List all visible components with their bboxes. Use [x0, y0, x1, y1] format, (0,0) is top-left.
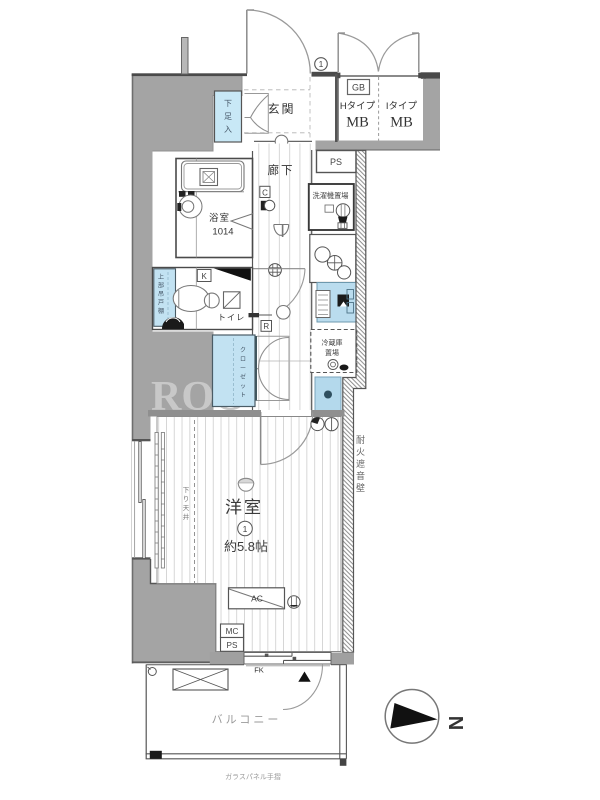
- svg-text:ク: ク: [240, 347, 246, 354]
- svg-text:下: 下: [183, 486, 190, 494]
- svg-text:冷蔵庫: 冷蔵庫: [322, 338, 343, 347]
- svg-text:天: 天: [183, 504, 190, 512]
- svg-text:K: K: [202, 272, 208, 281]
- svg-text:トイレ: トイレ: [218, 313, 246, 322]
- svg-text:1: 1: [319, 59, 324, 69]
- svg-text:音: 音: [356, 470, 365, 481]
- svg-text:Iタイプ: Iタイプ: [386, 101, 418, 112]
- svg-text:り: り: [183, 495, 190, 503]
- svg-text:足: 足: [224, 112, 232, 121]
- svg-text:置場: 置場: [325, 348, 339, 357]
- svg-text:R: R: [263, 322, 269, 331]
- svg-text:ガラスパネル手摺: ガラスパネル手摺: [225, 772, 281, 781]
- svg-text:ー: ー: [240, 366, 246, 372]
- svg-text:上: 上: [158, 273, 164, 281]
- svg-text:火: 火: [356, 447, 365, 457]
- svg-text:洗濯機置場: 洗濯機置場: [313, 191, 349, 200]
- svg-text:部: 部: [158, 282, 164, 290]
- svg-text:ゼ: ゼ: [240, 373, 246, 381]
- svg-text:耐: 耐: [356, 434, 365, 445]
- svg-text:1: 1: [243, 524, 248, 534]
- svg-text:玄関: 玄関: [267, 101, 295, 116]
- svg-text:入: 入: [224, 125, 232, 134]
- svg-text:N: N: [444, 716, 466, 730]
- svg-text:浴室: 浴室: [209, 212, 230, 224]
- svg-text:PS: PS: [227, 641, 238, 650]
- svg-text:MB: MB: [346, 115, 369, 131]
- svg-text:廊下: 廊下: [268, 163, 295, 177]
- svg-text:洋室: 洋室: [225, 498, 263, 517]
- svg-text:MB: MB: [390, 115, 413, 131]
- svg-text:MC: MC: [226, 627, 239, 636]
- svg-text:棚: 棚: [158, 307, 164, 315]
- svg-text:1014: 1014: [212, 227, 233, 238]
- svg-text:バルコニー: バルコニー: [212, 713, 282, 726]
- svg-text:ッ: ッ: [240, 384, 246, 390]
- svg-text:ト: ト: [240, 393, 246, 399]
- svg-text:吊: 吊: [158, 291, 164, 298]
- svg-text:Hタイプ: Hタイプ: [340, 101, 376, 112]
- svg-text:AC: AC: [251, 594, 263, 604]
- svg-text:ロ: ロ: [240, 357, 246, 363]
- svg-text:下: 下: [224, 99, 232, 108]
- svg-text:FK: FK: [254, 666, 264, 675]
- svg-text:壁: 壁: [356, 482, 365, 493]
- svg-text:井: 井: [183, 512, 190, 521]
- svg-text:C: C: [262, 188, 268, 197]
- svg-text:PS: PS: [330, 157, 342, 167]
- svg-text:GB: GB: [352, 83, 365, 93]
- svg-text:約5.8帖: 約5.8帖: [224, 539, 268, 554]
- svg-text:戸: 戸: [158, 300, 164, 307]
- svg-text:遮: 遮: [356, 458, 365, 469]
